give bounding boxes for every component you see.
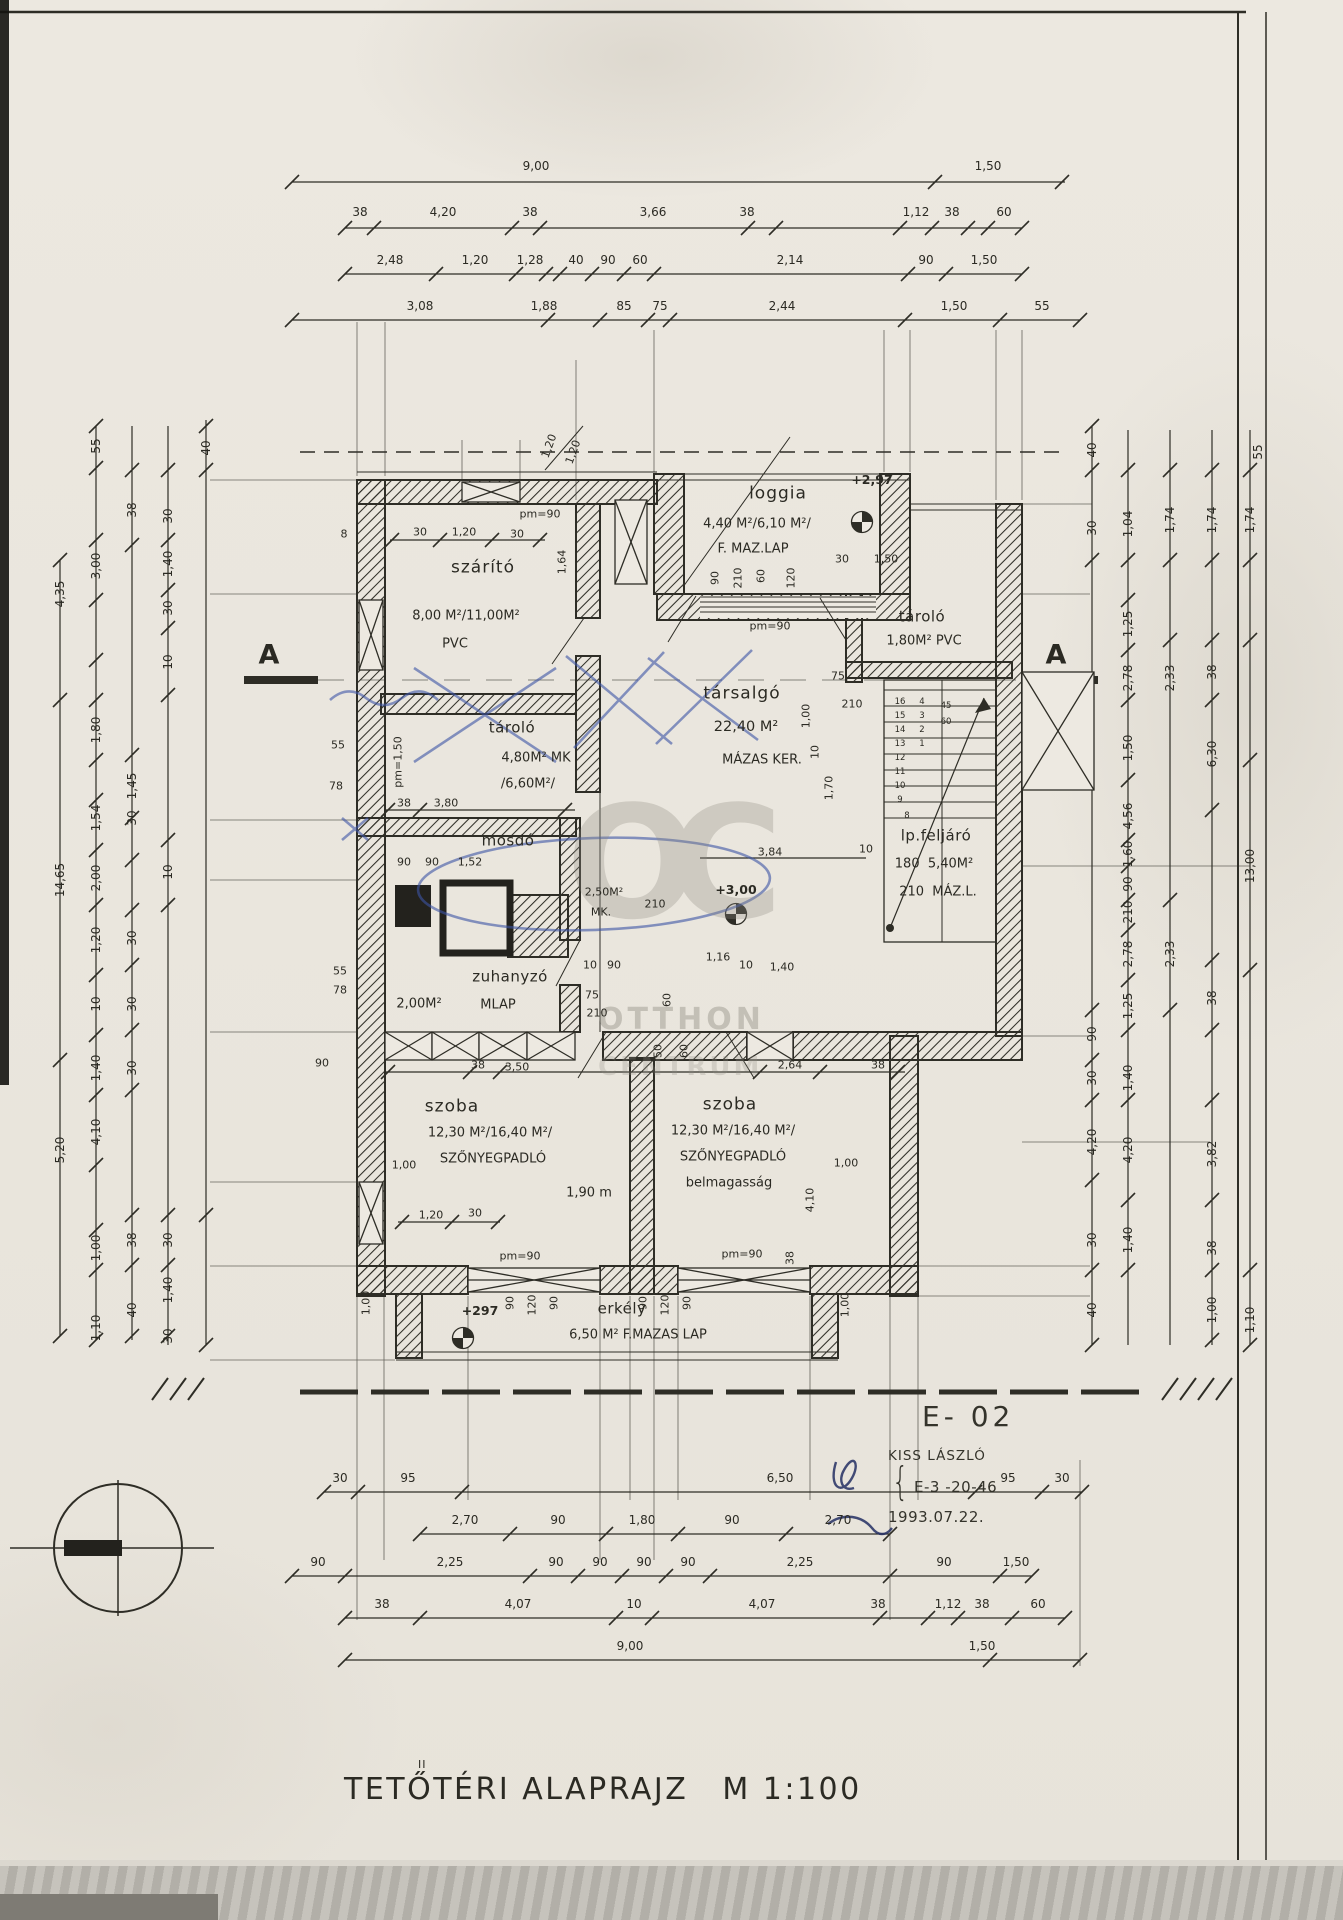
dim-label: 3,50	[505, 1062, 530, 1073]
room-area-label: 1,90 m	[566, 1187, 612, 1200]
dim-label: 38	[785, 1251, 796, 1265]
dim-label: 1,00	[361, 1291, 372, 1316]
room-name-label: szoba	[425, 1099, 479, 1116]
dim-label: 90	[682, 1296, 693, 1310]
room-name-label: lp.feljáró	[901, 829, 972, 844]
dim-label: 210	[645, 899, 666, 910]
dim-label: 1,16	[706, 952, 731, 963]
dim-label: 8	[341, 529, 348, 540]
dim-label: 10	[810, 745, 821, 759]
dim-label: 10	[859, 844, 873, 855]
dim-label: 90	[397, 857, 411, 868]
dim-label: 5,20	[54, 1137, 66, 1164]
dim-label: 4,20	[430, 206, 457, 218]
dim-label: 38	[739, 206, 754, 218]
dim-label: 30	[1086, 1070, 1098, 1085]
dim-label: 30	[162, 600, 174, 615]
stair-number: 1	[919, 740, 924, 749]
dim-label: 4,20	[1122, 1137, 1134, 1164]
dim-label: 2,25	[437, 1556, 464, 1568]
drawing-date: 1993.07.22.	[888, 1508, 984, 1526]
dim-label: 210	[842, 699, 863, 710]
dim-label: 38	[1206, 1240, 1218, 1255]
dim-label: 6,30	[1206, 741, 1218, 768]
stair-number: 14	[895, 726, 906, 735]
dim-label: 40	[1086, 1302, 1098, 1317]
sheet-number: E- 02	[922, 1400, 1014, 1433]
room-area-label: 12,30 M²/16,40 M²/	[428, 1127, 552, 1140]
dim-label: 30	[162, 508, 174, 523]
dim-label: 3,08	[407, 300, 434, 312]
dim-label: 1,74	[1164, 507, 1176, 534]
elevation-label: +297	[462, 1305, 499, 1318]
dim-label: 78	[329, 781, 343, 792]
dim-label: 3,66	[640, 206, 667, 218]
dim-label: 38	[1206, 990, 1218, 1005]
dim-label: 1,74	[1206, 507, 1218, 534]
dim-label: 4,20	[1086, 1129, 1098, 1156]
dim-label: 90	[310, 1556, 325, 1568]
stair-number: 3	[919, 712, 924, 721]
scan-shadow	[0, 1894, 218, 1920]
dim-label: 30	[413, 527, 427, 538]
dim-label: 90	[505, 1296, 516, 1310]
dim-label: 55	[333, 966, 347, 977]
dim-label: 1,40	[162, 1277, 174, 1304]
dim-label: 38	[871, 1060, 885, 1071]
title-correction-mark: II	[418, 1758, 427, 1771]
room-area-label: 4,40 M²/6,10 M²/	[703, 518, 811, 531]
dim-label: 1,25	[1122, 993, 1134, 1020]
dim-label: 2,14	[777, 254, 804, 266]
room-area-label: 6,50 M² F.MAZAS LAP	[569, 1329, 707, 1342]
dim-label: 1,54	[90, 805, 102, 832]
dim-label: pm=90	[722, 1249, 763, 1260]
dim-label: 1,00	[392, 1160, 417, 1171]
dim-label: 1,50	[874, 554, 899, 565]
room-name-label: társalgó	[703, 686, 780, 703]
dim-label: 40	[126, 1302, 138, 1317]
dim-label: 1,00	[834, 1158, 859, 1169]
dim-label: 1,40	[90, 1055, 102, 1082]
dim-label: 30	[1054, 1472, 1069, 1484]
drawing-title: TETŐTÉRI ALAPRAJZM 1:100	[344, 1772, 862, 1807]
dim-label: 1,12	[903, 206, 930, 218]
dim-label: 90	[638, 1296, 649, 1310]
dim-label: 30	[1086, 520, 1098, 535]
dim-label: 38	[944, 206, 959, 218]
title-scale: M 1:100	[722, 1772, 861, 1807]
dim-label: 60	[679, 1044, 690, 1058]
dim-label: 38	[522, 206, 537, 218]
dim-label: 1,20	[462, 254, 489, 266]
dim-label: 1,50	[941, 300, 968, 312]
dim-label: 10	[162, 654, 174, 669]
dim-label: 1,45	[126, 773, 138, 800]
dim-label: 78	[333, 985, 347, 996]
dim-label: 38	[870, 1598, 885, 1610]
dim-label: 2,25	[787, 1556, 814, 1568]
dim-label: 1,00	[801, 704, 812, 729]
dim-label: 2,33	[1164, 941, 1176, 968]
dim-label: 1,50	[969, 1640, 996, 1652]
room-name-label: mosdó	[482, 834, 535, 849]
dim-label: 30	[510, 529, 524, 540]
dim-label: 90	[636, 1556, 651, 1568]
dim-label: 4,10	[805, 1188, 816, 1213]
dim-label: 4,07	[505, 1598, 532, 1610]
dim-label: 40	[200, 440, 212, 455]
room-name-label: tároló	[489, 721, 535, 736]
dim-label: 2,44	[769, 300, 796, 312]
dim-label: 55	[1034, 300, 1049, 312]
dim-label: 95	[1000, 1472, 1015, 1484]
label-layer: 9,001,50384,20383,66381,1238602,481,201,…	[0, 0, 1343, 1920]
dim-label: 60	[632, 254, 647, 266]
dim-label: 30	[468, 1208, 482, 1219]
room-area-label: 210 MÁZ.L.	[899, 886, 977, 899]
dim-label: 40	[568, 254, 583, 266]
title-text: TETŐTÉRI ALAPRAJZ	[344, 1772, 688, 1807]
dim-label: 1,20	[90, 927, 102, 954]
dim-label: 38	[974, 1598, 989, 1610]
dim-label: 210	[733, 568, 744, 589]
dim-label: MK.	[591, 907, 611, 918]
dim-label: 30	[835, 554, 849, 565]
dim-label: 1,28	[517, 254, 544, 266]
dim-label: 1,00	[1206, 1297, 1218, 1324]
dim-label: 1,00	[840, 1293, 851, 1318]
room-area-label: MÁZAS KER.	[722, 754, 802, 767]
dim-label: 55	[90, 438, 102, 453]
stair-number: 45	[941, 702, 952, 711]
stair-number: 15	[895, 712, 906, 721]
dim-label: 30	[332, 1472, 347, 1484]
room-area-label: MLAP	[480, 999, 516, 1012]
dim-label: 1,50	[975, 160, 1002, 172]
dim-label: 85	[616, 300, 631, 312]
dim-label: 120	[786, 568, 797, 589]
dim-label: 90	[550, 1514, 565, 1526]
dim-label: pm=90	[750, 621, 791, 632]
dim-label: 1,20	[452, 527, 477, 538]
stair-number: 12	[895, 754, 906, 763]
dim-label: 90	[548, 1556, 563, 1568]
dim-label: 3,00	[90, 553, 102, 580]
dim-label: 10	[626, 1598, 641, 1610]
dim-label: 1,40	[770, 962, 795, 973]
dim-label: 30	[126, 996, 138, 1011]
room-area-label: 12,30 M²/16,40 M²/	[671, 1125, 795, 1138]
room-name-label: szoba	[703, 1097, 757, 1114]
dim-label: 10	[583, 960, 597, 971]
room-area-label: SZŐNYEGPADLÓ	[440, 1153, 546, 1166]
dim-label: 1,50	[1122, 735, 1134, 762]
elevation-label: +3,00	[715, 884, 756, 897]
dim-label: 95	[400, 1472, 415, 1484]
dim-label: 40	[1086, 442, 1098, 457]
dim-label: pm=1,50	[393, 736, 404, 787]
room-area-label: 8,00 M²/11,00M²	[412, 610, 520, 623]
dim-label: 210	[1122, 901, 1134, 924]
dim-label: 55	[1252, 444, 1264, 459]
dim-label: 1,50	[1003, 1556, 1030, 1568]
dim-label: 2,78	[1122, 665, 1134, 692]
dim-label: 120	[660, 1295, 671, 1316]
dim-label: 1,20	[564, 439, 583, 466]
dim-label: 90	[936, 1556, 951, 1568]
stair-number: 4	[919, 698, 924, 707]
dim-label: 90	[918, 254, 933, 266]
brace-glyph: {	[892, 1461, 909, 1506]
dim-label: 1,10	[90, 1315, 102, 1342]
dim-label: 38	[471, 1060, 485, 1071]
room-area-label: /6,60M²/	[501, 778, 555, 791]
dim-label: 90	[425, 857, 439, 868]
dim-label: 38	[126, 1232, 138, 1247]
dim-label: 4,35	[54, 581, 66, 608]
dim-label: 60	[996, 206, 1011, 218]
dim-label: 1,00	[90, 1235, 102, 1262]
room-name-label: szárító	[451, 560, 515, 577]
dim-label: 10	[162, 864, 174, 879]
dim-label: 90	[607, 960, 621, 971]
stair-number: 10	[895, 782, 906, 791]
dim-label: 9,00	[523, 160, 550, 172]
dim-label: 1,60	[1122, 841, 1134, 868]
room-area-label: 22,40 M²	[714, 720, 778, 735]
dim-label: 90	[680, 1556, 695, 1568]
dim-label: 3,82	[1206, 1141, 1218, 1168]
dim-label: 1,40	[1122, 1227, 1134, 1254]
dim-label: 60	[756, 569, 767, 583]
dim-label: 30	[1086, 1232, 1098, 1247]
dim-label: 75	[652, 300, 667, 312]
dim-label: 1,80	[629, 1514, 656, 1526]
dim-label: 38	[126, 502, 138, 517]
dim-label: 1,20	[419, 1210, 444, 1221]
dim-label: 1,12	[935, 1598, 962, 1610]
room-name-label: tároló	[899, 610, 945, 625]
dim-label: 6,50	[767, 1472, 794, 1484]
dim-label: 90	[1122, 876, 1134, 891]
room-name-label: zuhanyzó	[472, 970, 548, 985]
dim-label: 3,80	[434, 798, 459, 809]
dim-label: 38	[374, 1598, 389, 1610]
stair-number: 11	[895, 768, 906, 777]
room-area-label: 4,80M² MK	[501, 752, 570, 765]
dim-label: 13,00	[1244, 849, 1256, 883]
floor-plan-sheet: OC OTTHON CENTRUM A A 9,001,50384,20383,…	[0, 0, 1343, 1920]
dim-label: 14,65	[54, 863, 66, 897]
room-area-label: SZŐNYEGPADLÓ	[680, 1151, 786, 1164]
dim-label: 1,25	[1122, 611, 1134, 638]
stair-number: 60	[941, 718, 952, 727]
dim-label: 4,10	[90, 1119, 102, 1146]
dim-label: 1,40	[162, 551, 174, 578]
dim-label: 10	[90, 996, 102, 1011]
elevation-label: +2,97	[851, 474, 892, 487]
dim-label: 1,40	[1122, 1065, 1134, 1092]
dim-label: 3,84	[758, 847, 783, 858]
dim-label: 2,48	[377, 254, 404, 266]
stair-number: 2	[919, 726, 924, 735]
room-area-label: PVC	[442, 638, 468, 651]
dim-label: 1,64	[557, 550, 568, 575]
dim-label: 90	[1086, 1026, 1098, 1041]
dim-label: 90	[315, 1058, 329, 1069]
dim-label: 210	[587, 1008, 608, 1019]
room-area-label: 2,00M²	[396, 998, 441, 1011]
dim-label: 2,70	[452, 1514, 479, 1526]
dim-label: 30	[126, 930, 138, 945]
room-area-label: 180 5,40M²	[895, 858, 973, 871]
dim-label: 38	[397, 798, 411, 809]
stair-number: 16	[895, 698, 906, 707]
dim-label: 10	[739, 960, 753, 971]
room-name-label: loggia	[749, 486, 807, 503]
dim-label: 1,20	[540, 433, 559, 460]
dim-label: 1,70	[824, 776, 835, 801]
room-area-label: F. MAZ.LAP	[717, 543, 788, 556]
dim-label: pm=90	[520, 509, 561, 520]
dim-label: 90	[600, 254, 615, 266]
dim-label: 1,88	[531, 300, 558, 312]
stair-number: 13	[895, 740, 906, 749]
dim-label: 60	[662, 993, 673, 1007]
dim-label: 4,07	[749, 1598, 776, 1610]
dim-label: 120	[527, 1295, 538, 1316]
room-area-label: 1,80M² PVC	[886, 635, 961, 648]
dim-label: 2,70	[825, 1514, 852, 1526]
dim-label: 1,80	[90, 717, 102, 744]
dim-label: 1,52	[458, 857, 483, 868]
dim-label: 2,50M²	[585, 887, 623, 898]
dim-label: 30	[126, 1060, 138, 1075]
dim-label: 30	[162, 1232, 174, 1247]
dim-label: 2,64	[778, 1060, 803, 1071]
dim-label: 75	[585, 990, 599, 1001]
dim-label: 30	[126, 810, 138, 825]
dim-label: 1,04	[1122, 511, 1134, 538]
stair-number: 9	[897, 796, 902, 805]
dim-label: 9,00	[617, 1640, 644, 1652]
dim-label: pm=90	[500, 1251, 541, 1262]
dim-label: 55	[331, 740, 345, 751]
dim-label: 1,50	[971, 254, 998, 266]
dim-label: 1,10	[1244, 1307, 1256, 1334]
dim-label: 2,78	[1122, 941, 1134, 968]
room-area-label: belmagasság	[686, 1177, 772, 1190]
dim-label: 90	[724, 1514, 739, 1526]
dim-label: 4,56	[1122, 803, 1134, 830]
dim-label: 90	[549, 1296, 560, 1310]
drawing-ref: E-3 -20-46	[914, 1478, 997, 1496]
dim-label: 50	[653, 1044, 664, 1058]
dim-label: 90	[710, 571, 721, 585]
stair-number: 8	[904, 812, 909, 821]
dim-label: 60	[1030, 1598, 1045, 1610]
dim-label: 38	[352, 206, 367, 218]
dim-label: 90	[592, 1556, 607, 1568]
dim-label: 1,74	[1244, 507, 1256, 534]
dim-label: 2,33	[1164, 665, 1176, 692]
dim-label: 75	[831, 671, 845, 682]
dim-label: 2,00	[90, 865, 102, 892]
dim-label: 38	[1206, 664, 1218, 679]
dim-label: 30	[162, 1328, 174, 1343]
